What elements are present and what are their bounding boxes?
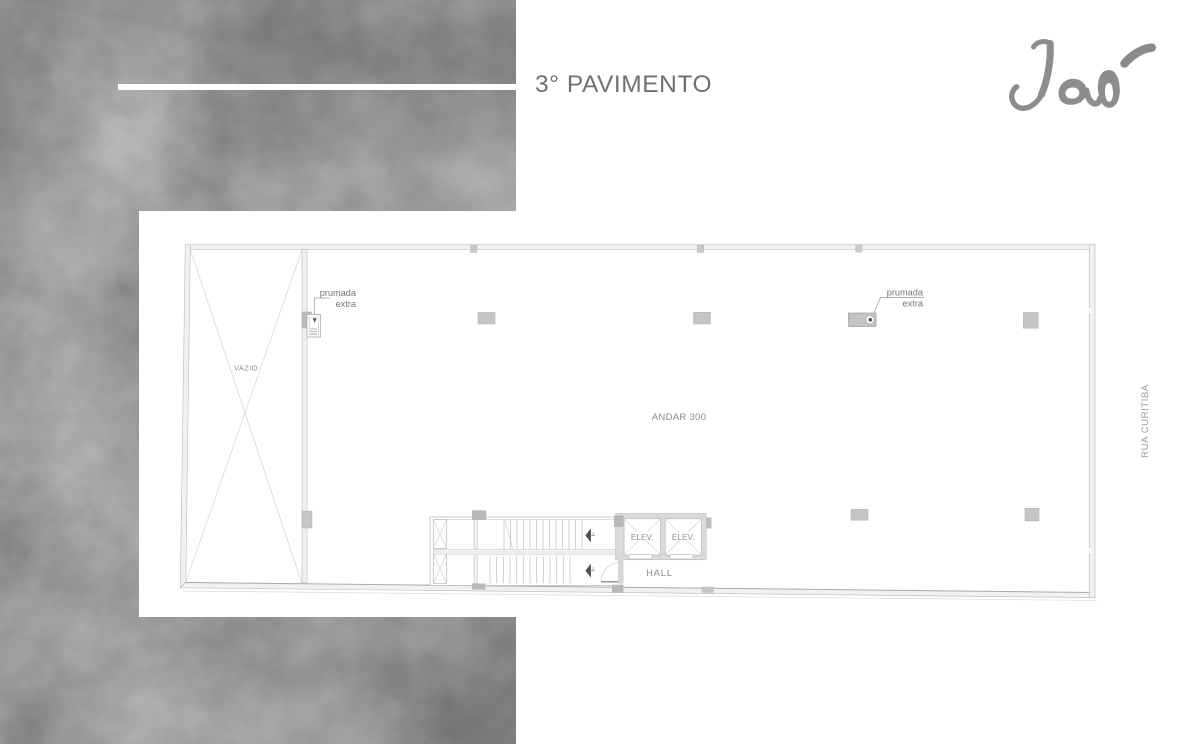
svg-text:ANDAR 300: ANDAR 300	[652, 412, 706, 423]
svg-text:ELEV.: ELEV.	[672, 533, 695, 542]
svg-text:prumada: prumada	[887, 288, 924, 298]
svg-text:extra: extra	[336, 299, 357, 309]
svg-text:VAZIO: VAZIO	[234, 364, 258, 373]
svg-text:prumada: prumada	[320, 288, 357, 298]
svg-text:extra: extra	[903, 298, 924, 308]
svg-text:HALL: HALL	[646, 568, 673, 578]
svg-text:ELEV.: ELEV.	[631, 533, 654, 542]
